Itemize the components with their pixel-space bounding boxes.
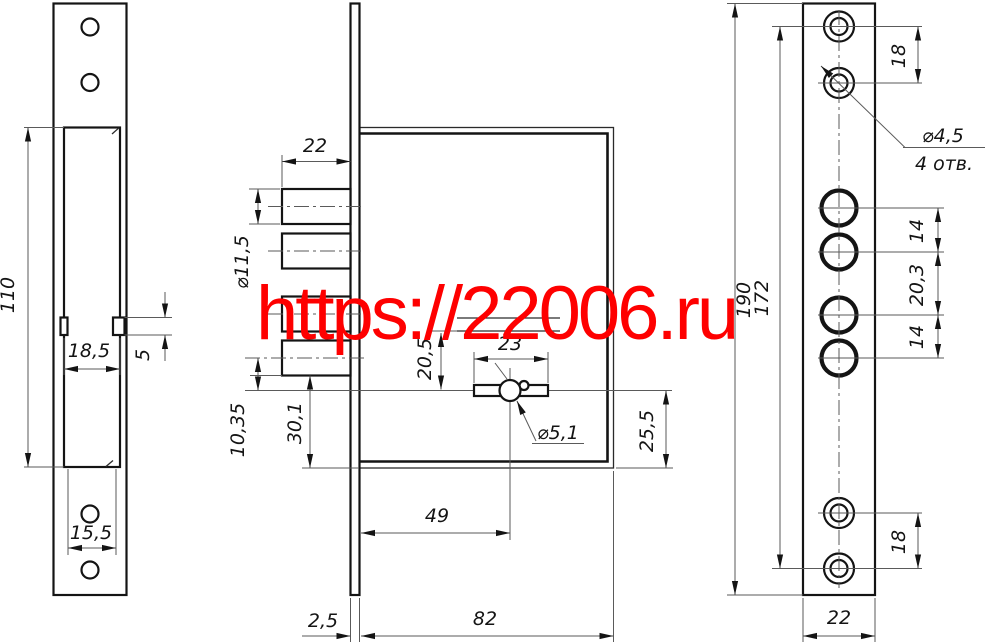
dim-18-bottom: 18 (888, 513, 918, 569)
svg-text:22: 22 (303, 135, 327, 157)
svg-text:25,5: 25,5 (636, 410, 658, 452)
svg-text:82: 82 (473, 608, 497, 630)
dim-25-5: 25,5 (616, 391, 673, 469)
svg-text:18: 18 (888, 530, 910, 554)
dim-22-faceplate: 22 (803, 598, 875, 642)
svg-text:22: 22 (827, 607, 851, 629)
svg-text:2,5: 2,5 (308, 610, 338, 632)
strike-tab-right (113, 318, 125, 336)
leader-key-pin: ⌀5,1 (495, 363, 584, 444)
svg-text:⌀4,5: ⌀4,5 (922, 125, 964, 147)
key-pin-hole (500, 380, 521, 401)
svg-text:18,5: 18,5 (68, 340, 110, 362)
drawing-sheet: 110 18,5 5 15,5 (0, 0, 1000, 644)
svg-text:110: 110 (0, 277, 19, 313)
svg-text:49: 49 (425, 505, 449, 527)
svg-text:⌀11,5: ⌀11,5 (231, 235, 253, 289)
site-watermark: https://22006.ru (256, 276, 736, 352)
svg-text:5: 5 (132, 349, 154, 361)
dim-bolt-pitches: 14 20,3 14 (906, 208, 938, 358)
svg-text:20,3: 20,3 (906, 264, 928, 306)
svg-text:4 отв.: 4 отв. (915, 153, 973, 175)
svg-text:18: 18 (888, 44, 910, 68)
svg-text:10,35: 10,35 (227, 403, 249, 457)
dim-5: 5 (125, 292, 173, 361)
dim-30-1: 30,1 (250, 376, 359, 469)
strike-tab-left (61, 318, 68, 336)
strike-plate-view: 110 18,5 5 15,5 (0, 4, 172, 596)
dim-22-bolt: 22 (282, 135, 351, 187)
dim-172: 172 (751, 27, 780, 569)
faceplate-view: 18 ⌀4,5 4 отв. 14 20,3 14 18 172 (727, 4, 985, 643)
dim-10-35: 10,35 (227, 358, 258, 457)
svg-text:14: 14 (906, 219, 928, 243)
svg-text:190: 190 (733, 282, 755, 318)
svg-text:15,5: 15,5 (70, 522, 112, 544)
dim-18-top: 18 (888, 27, 918, 84)
dim-49: 49 (361, 505, 510, 533)
svg-text:30,1: 30,1 (284, 402, 306, 444)
svg-text:14: 14 (906, 325, 928, 349)
svg-text:⌀5,1: ⌀5,1 (537, 422, 579, 444)
dim-2-5-and-82: 2,5 82 (302, 471, 614, 642)
